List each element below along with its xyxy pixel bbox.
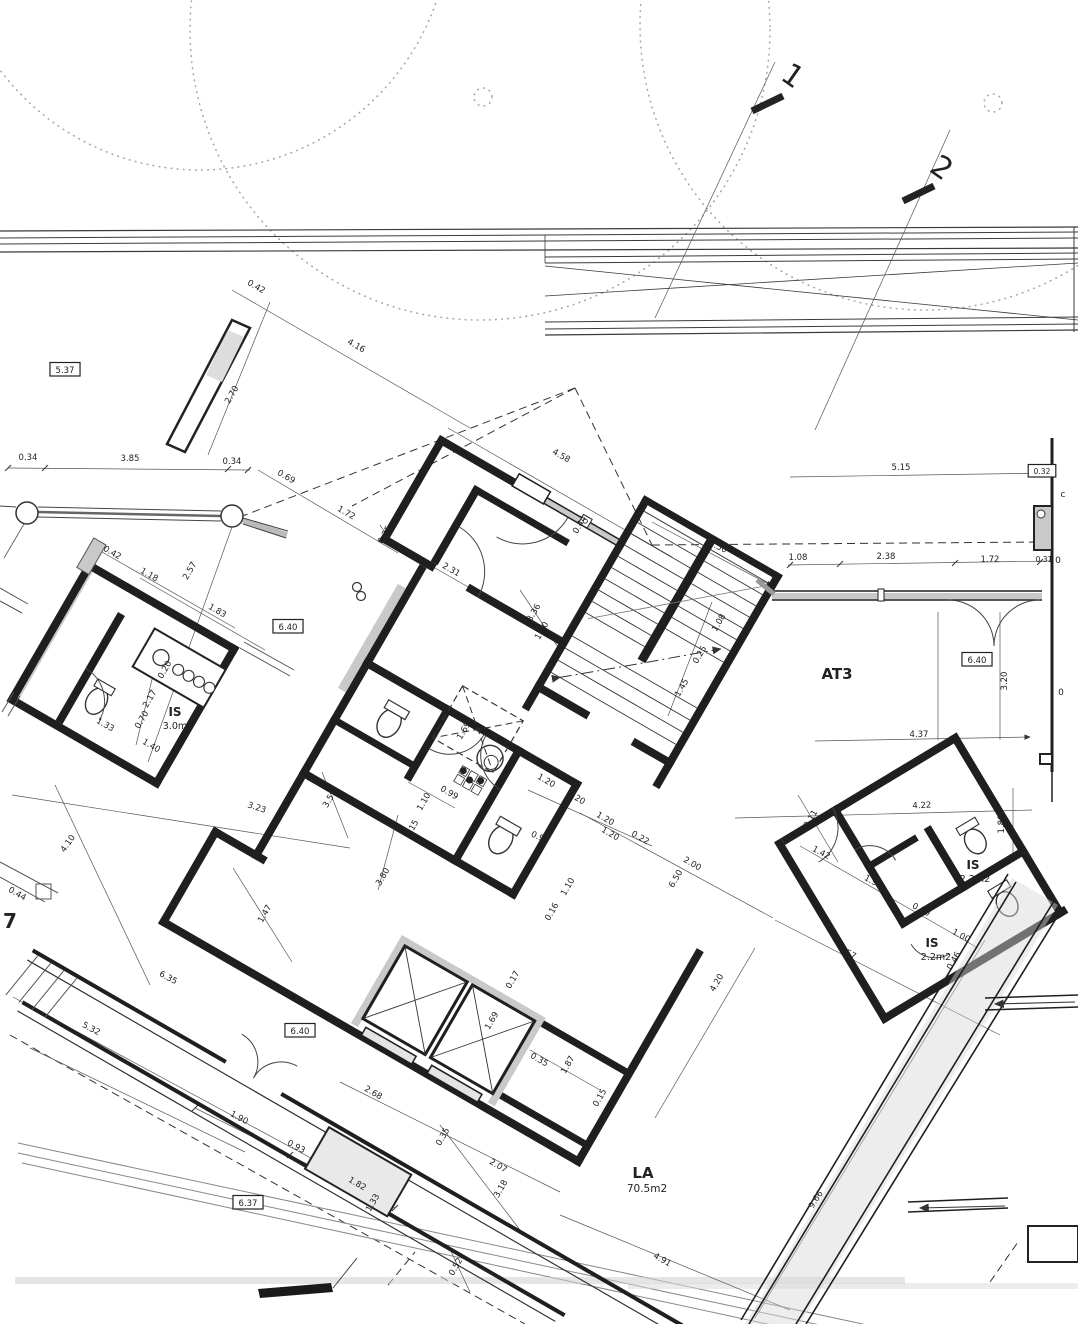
dimension-label: 4.16	[345, 337, 366, 355]
tile-fixture	[453, 765, 487, 795]
dimension-label: 0.35	[528, 1051, 549, 1069]
walkway-stub	[908, 1198, 1008, 1212]
figure8-symbol	[353, 583, 366, 601]
dimension-label: 0.34	[19, 453, 38, 463]
floor-plan-page: 125.376.406.406.406.370.32AT3IS3.0m2IS2.…	[0, 0, 1078, 1324]
dimension-label: 1.72	[981, 555, 1000, 565]
at3-zone	[757, 438, 1052, 802]
dimension-label: 4.22	[912, 801, 931, 812]
floor-plan-canvas: 125.376.406.406.406.370.32AT3IS3.0m2IS2.…	[0, 0, 1078, 1324]
edge-label: c	[1061, 490, 1066, 500]
section-tick-2	[903, 186, 934, 201]
dimension-label: 5.15	[892, 463, 911, 473]
dimension-label: 3.18	[492, 1178, 510, 1199]
dimension-label: 1.20	[599, 825, 620, 843]
section-marker: 1	[775, 56, 811, 96]
dimension-label: 0.93	[285, 1138, 306, 1156]
dimension-label: 6.35	[157, 969, 178, 987]
ramp-rectangle	[167, 320, 250, 452]
dimension-label: 0.99	[438, 784, 459, 802]
bottom-left-wall	[2, 922, 698, 1324]
section-marker: 2	[924, 148, 960, 188]
level-box-label: 0.32	[1034, 467, 1051, 476]
room-label: IS	[966, 858, 979, 872]
room-area-label: 70.5m2	[627, 1183, 667, 1195]
dimension-label: 0.69	[275, 468, 296, 486]
fence-post	[221, 505, 243, 527]
dimension-label: 1.10	[559, 876, 577, 897]
small-tree-icon	[984, 94, 1002, 112]
room-label: AT3	[821, 665, 852, 683]
room-label: IS	[168, 705, 181, 719]
road-band	[0, 227, 1078, 335]
level-box-label: 6.37	[239, 1199, 258, 1209]
edge-label: 0	[1058, 688, 1064, 698]
dimension-label: 0.44	[6, 885, 27, 903]
edge-label: 0	[1055, 556, 1061, 566]
dimension-label: 4.10	[59, 833, 78, 854]
dimension-label: 3.85	[121, 454, 140, 464]
room-area-label: 3.0m2	[163, 721, 193, 732]
dimension-label: 0.17	[504, 969, 522, 990]
small-tree-icon	[474, 88, 492, 106]
dimension-label: 0.16	[543, 901, 561, 922]
left-wing-is-room	[1, 538, 250, 789]
detail-box	[1028, 1226, 1078, 1262]
dimension-label: 1.33	[94, 716, 115, 734]
dimension-label: 4.58	[550, 447, 571, 465]
dimension-label: 3.20	[1000, 672, 1010, 691]
dimension-label: 0.42	[245, 278, 266, 296]
level-box-label: 6.40	[291, 1027, 310, 1037]
dimension-label: 0.31	[1036, 555, 1053, 564]
room-area-label: 2.2m2	[960, 874, 990, 885]
dimension-label: 4.20	[708, 972, 726, 993]
dimension-label: 0.25	[691, 644, 709, 665]
diagonal-corridor	[741, 874, 1078, 1324]
dimension-label: 4.91	[651, 1251, 672, 1269]
dimension-label: 2.70	[223, 384, 241, 405]
dimension-label: 2.68	[362, 1084, 383, 1102]
section-cut-marks	[655, 62, 950, 430]
dimension-label: 1.80	[997, 815, 1007, 834]
level-box-label: 6.40	[968, 656, 987, 666]
dimension-label: 1.18	[138, 566, 159, 584]
scale-bar	[258, 1283, 333, 1298]
dimension-label: 1.45	[673, 677, 691, 698]
room-label: LA	[632, 1164, 654, 1182]
dimension-label: 2.07	[487, 1157, 508, 1175]
dimension-label: 0.22	[629, 829, 650, 847]
right-wing-is-rooms	[774, 731, 1068, 1024]
dimension-label: 6.50	[667, 868, 685, 889]
dimension-label: 2.31	[440, 561, 461, 579]
dimension-label: 1.87	[559, 1054, 577, 1075]
section-tick-1	[752, 96, 783, 111]
dimension-label: 1.42	[810, 844, 831, 862]
dimension-label: 3.23	[246, 800, 267, 815]
room-area-label: 2.2m2	[921, 952, 951, 963]
edge-label: 7	[3, 909, 17, 933]
dimension-label: 1.08	[789, 553, 808, 563]
dimension-label: 1.72	[335, 504, 356, 522]
dimension-label: 2.38	[877, 552, 896, 562]
dimension-label: 0.34	[223, 457, 242, 467]
dimension-label: 0.70	[133, 709, 151, 730]
dimension-label: 3.80	[374, 866, 392, 887]
left-edge-fragments	[0, 862, 58, 902]
dimension-label: 1.47	[256, 903, 274, 924]
dimension-label: 2.17	[141, 688, 159, 709]
fence	[0, 502, 288, 558]
level-box-label: 5.37	[56, 366, 75, 376]
site-trees	[0, 0, 1078, 320]
dimension-label: 0.42	[101, 544, 122, 562]
room-label: IS	[925, 936, 938, 950]
fence-post	[16, 502, 38, 524]
dimension-label: 0.52	[447, 1256, 465, 1277]
site-road-bottom	[15, 1143, 1078, 1324]
level-box-label: 6.40	[279, 623, 298, 633]
dimension-label: 1.08	[710, 612, 728, 633]
dimension-label: 4.37	[910, 730, 929, 740]
dimension-label: 2.57	[181, 560, 199, 581]
dimension-label: 2.00	[681, 855, 702, 873]
walkway-stub	[985, 995, 1078, 1010]
